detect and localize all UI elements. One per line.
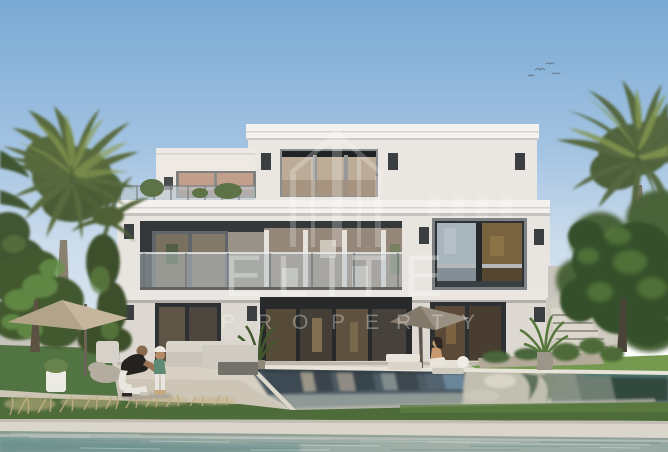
svg-text:E: E — [404, 244, 443, 309]
svg-text:P: P — [221, 311, 235, 334]
svg-text:R: R — [396, 311, 411, 334]
svg-text:L: L — [276, 244, 308, 309]
svg-text:T: T — [431, 311, 444, 334]
svg-text:E: E — [365, 311, 379, 334]
svg-text:P: P — [331, 311, 345, 334]
svg-text:R: R — [257, 311, 272, 334]
svg-text:I: I — [324, 244, 340, 309]
svg-text:O: O — [292, 311, 308, 334]
svg-text:T: T — [351, 244, 386, 309]
svg-text:Y: Y — [461, 311, 475, 334]
svg-text:E: E — [224, 244, 263, 309]
